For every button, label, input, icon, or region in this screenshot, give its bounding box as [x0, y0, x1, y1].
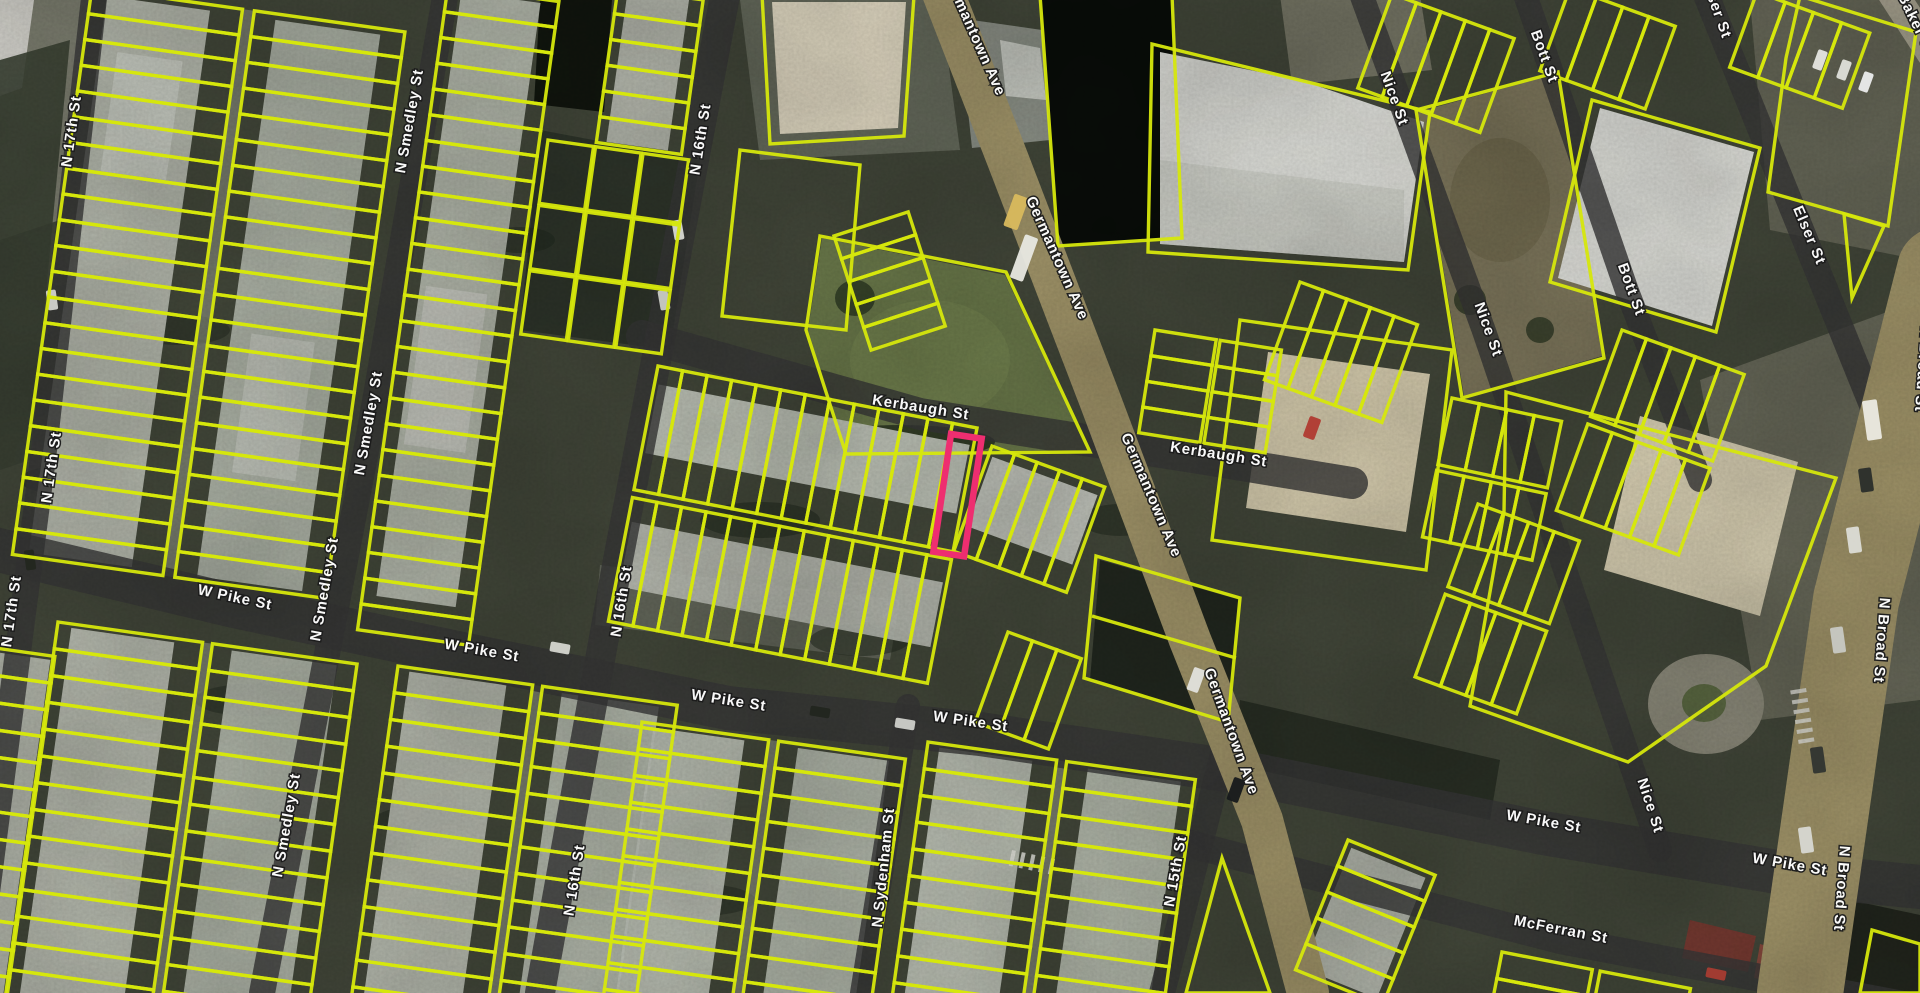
aerial-parcel-map[interactable]: Kerbaugh StKerbaugh StW Pike StW Pike St… [0, 0, 1920, 993]
map-viewport[interactable]: Kerbaugh StKerbaugh StW Pike StW Pike St… [0, 0, 1920, 993]
